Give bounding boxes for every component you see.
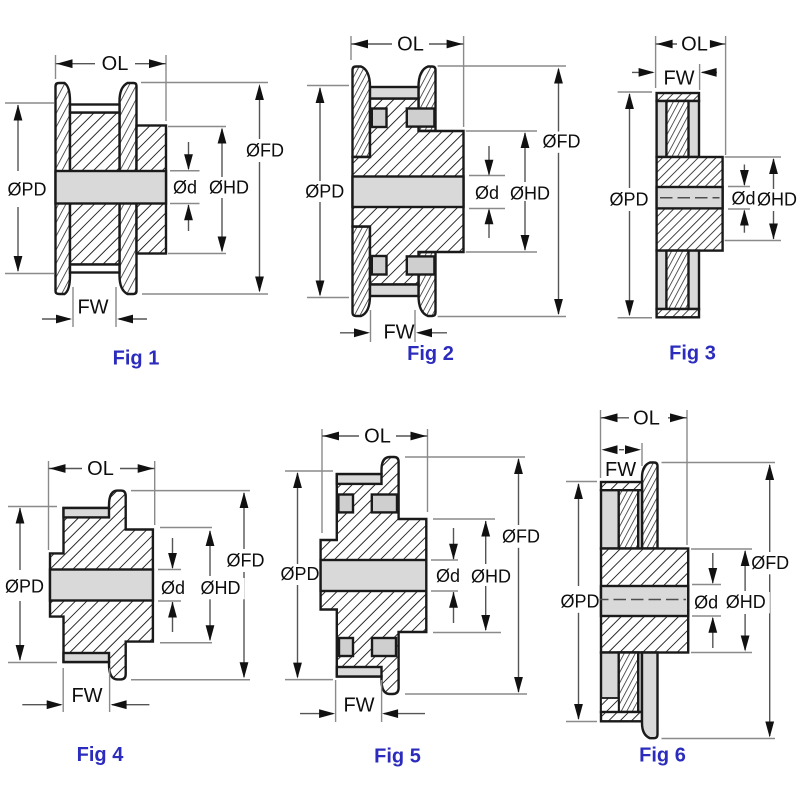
svg-text:OL: OL bbox=[633, 407, 660, 429]
svg-text:ØPD: ØPD bbox=[7, 180, 46, 200]
svg-text:OL: OL bbox=[102, 53, 129, 75]
svg-text:ØHD: ØHD bbox=[510, 184, 550, 204]
svg-text:OL: OL bbox=[364, 426, 391, 448]
svg-text:ØPD: ØPD bbox=[280, 564, 319, 584]
svg-text:ØHD: ØHD bbox=[209, 178, 249, 198]
svg-text:Fig 4: Fig 4 bbox=[77, 744, 125, 766]
svg-text:ØFD: ØFD bbox=[227, 551, 265, 571]
svg-text:Ød: Ød bbox=[731, 189, 755, 209]
svg-text:Fig 3: Fig 3 bbox=[669, 343, 716, 365]
svg-text:ØHD: ØHD bbox=[726, 592, 766, 612]
svg-text:FW: FW bbox=[605, 459, 636, 481]
svg-text:ØPD: ØPD bbox=[305, 182, 344, 202]
svg-text:ØPD: ØPD bbox=[609, 190, 648, 210]
svg-text:ØFD: ØFD bbox=[246, 141, 284, 161]
svg-text:Ød: Ød bbox=[475, 183, 499, 203]
svg-text:FW: FW bbox=[663, 68, 694, 90]
svg-text:FW: FW bbox=[71, 685, 102, 707]
svg-text:ØHD: ØHD bbox=[757, 190, 797, 210]
svg-text:FW: FW bbox=[383, 322, 414, 344]
svg-text:Fig 6: Fig 6 bbox=[639, 745, 686, 767]
svg-text:ØPD: ØPD bbox=[5, 577, 44, 597]
svg-text:ØFD: ØFD bbox=[751, 553, 789, 573]
svg-text:ØHD: ØHD bbox=[471, 567, 511, 587]
svg-text:ØPD: ØPD bbox=[560, 592, 599, 612]
svg-text:Fig 5: Fig 5 bbox=[374, 746, 421, 768]
svg-text:OL: OL bbox=[87, 458, 114, 480]
svg-text:Ød: Ød bbox=[161, 578, 185, 598]
svg-text:Ød: Ød bbox=[436, 566, 460, 586]
svg-text:OL: OL bbox=[681, 34, 708, 56]
svg-text:Fig 2: Fig 2 bbox=[407, 343, 454, 365]
svg-text:ØFD: ØFD bbox=[543, 132, 581, 152]
svg-text:ØHD: ØHD bbox=[201, 578, 241, 598]
svg-text:FW: FW bbox=[343, 695, 374, 717]
svg-text:OL: OL bbox=[397, 34, 424, 56]
svg-text:Ød: Ød bbox=[694, 592, 718, 612]
svg-text:Ød: Ød bbox=[173, 178, 197, 198]
svg-text:ØFD: ØFD bbox=[502, 527, 540, 547]
svg-text:FW: FW bbox=[77, 297, 108, 319]
svg-text:Fig 1: Fig 1 bbox=[113, 348, 160, 370]
